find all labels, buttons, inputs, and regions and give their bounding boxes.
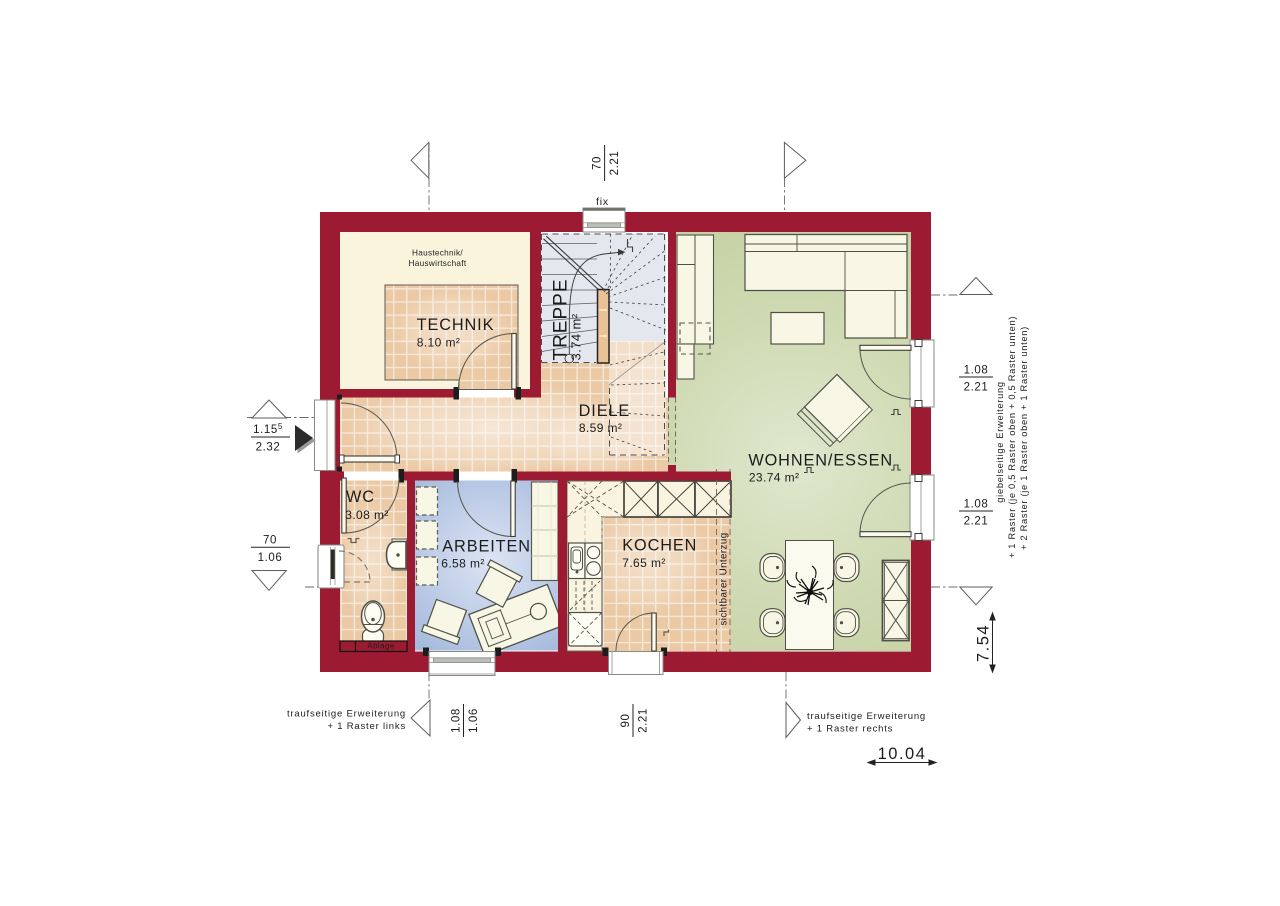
svg-text:70: 70 <box>263 535 277 547</box>
svg-text:7.54: 7.54 <box>975 624 993 662</box>
svg-text:TECHNIK: TECHNIK <box>417 316 495 334</box>
svg-text:3.74 m²: 3.74 m² <box>569 313 584 360</box>
svg-text:1.06: 1.06 <box>468 708 480 733</box>
svg-text:1.08: 1.08 <box>451 708 463 733</box>
svg-text:Ablage: Ablage <box>367 642 394 651</box>
svg-text:WOHNEN/ESSEN: WOHNEN/ESSEN <box>748 452 893 470</box>
svg-text:3.08 m²: 3.08 m² <box>345 508 388 522</box>
svg-text:70: 70 <box>592 156 604 170</box>
svg-text:traufseitige Erweiterung: traufseitige Erweiterung <box>807 711 926 722</box>
svg-text:giebelseitige Erweiterung: giebelseitige Erweiterung <box>995 381 1005 502</box>
svg-text:1.08: 1.08 <box>964 499 989 511</box>
svg-text:2.32: 2.32 <box>256 442 281 454</box>
svg-text:+ 1 Raster (je 0,5 Raster oben: + 1 Raster (je 0,5 Raster oben + 0,5 Ras… <box>1007 316 1017 558</box>
svg-text:WC: WC <box>346 488 375 506</box>
svg-text:+ 1 Raster links: + 1 Raster links <box>327 721 406 732</box>
svg-text:DIELE: DIELE <box>579 402 631 420</box>
svg-text:fix: fix <box>596 196 609 208</box>
svg-text:1.06: 1.06 <box>258 552 283 564</box>
svg-text:+ 2 Raster (je 1 Raster oben +: + 2 Raster (je 1 Raster oben + 1 Raster … <box>1019 326 1029 550</box>
svg-text:8.59 m²: 8.59 m² <box>579 421 622 435</box>
svg-text:+ 1 Raster rechts: + 1 Raster rechts <box>807 724 893 735</box>
svg-text:7.65 m²: 7.65 m² <box>622 556 665 570</box>
svg-text:10.04: 10.04 <box>878 745 927 763</box>
svg-text:1.08: 1.08 <box>964 365 989 377</box>
svg-text:2.21: 2.21 <box>638 708 650 733</box>
svg-text:2.21: 2.21 <box>609 151 621 176</box>
svg-text:2.21: 2.21 <box>964 382 989 394</box>
svg-text:23.74 m²: 23.74 m² <box>749 470 800 484</box>
svg-text:Hauswirtschaft: Hauswirtschaft <box>409 259 467 268</box>
svg-text:2.21: 2.21 <box>964 516 989 528</box>
svg-text:90: 90 <box>620 714 632 728</box>
svg-text:6.58 m²: 6.58 m² <box>441 557 484 571</box>
svg-text:ARBEITEN: ARBEITEN <box>442 538 531 556</box>
svg-text:traufseitige Erweiterung: traufseitige Erweiterung <box>287 709 406 720</box>
svg-text:KOCHEN: KOCHEN <box>622 536 697 554</box>
svg-text:Haustechnik/: Haustechnik/ <box>412 249 463 258</box>
svg-text:8.10 m²: 8.10 m² <box>417 336 460 350</box>
svg-text:sichtbarer Unterzug: sichtbarer Unterzug <box>719 532 730 625</box>
